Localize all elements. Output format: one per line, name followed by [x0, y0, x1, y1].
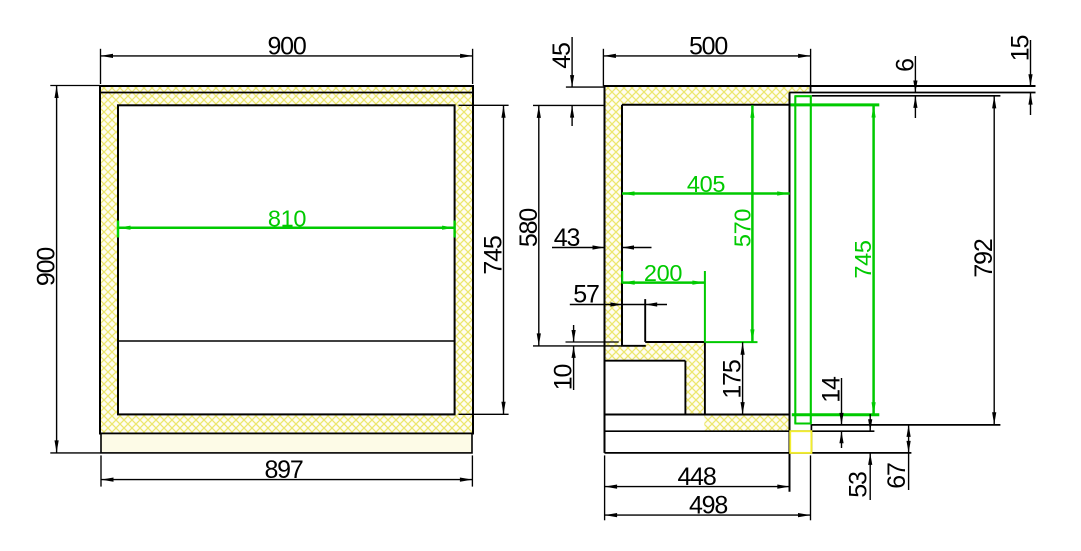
svg-text:570: 570	[729, 209, 755, 248]
svg-text:500: 500	[689, 32, 727, 60]
svg-text:745: 745	[850, 240, 876, 279]
svg-text:448: 448	[677, 463, 715, 491]
svg-text:67: 67	[883, 463, 911, 489]
svg-text:405: 405	[687, 171, 726, 197]
svg-text:10: 10	[550, 365, 578, 391]
svg-text:45: 45	[548, 43, 576, 69]
svg-text:6: 6	[891, 59, 919, 72]
svg-text:900: 900	[267, 32, 305, 60]
svg-text:897: 897	[264, 456, 302, 484]
svg-text:175: 175	[719, 360, 747, 398]
svg-text:580: 580	[515, 209, 543, 247]
svg-text:498: 498	[689, 492, 727, 520]
svg-text:900: 900	[32, 248, 60, 286]
svg-text:810: 810	[268, 206, 307, 232]
svg-text:14: 14	[818, 376, 846, 403]
svg-text:15: 15	[1007, 36, 1035, 62]
svg-text:745: 745	[480, 236, 508, 274]
svg-text:792: 792	[970, 239, 998, 277]
svg-text:200: 200	[644, 260, 683, 286]
svg-text:53: 53	[845, 472, 873, 498]
svg-text:43: 43	[554, 224, 580, 252]
svg-text:57: 57	[573, 281, 599, 309]
